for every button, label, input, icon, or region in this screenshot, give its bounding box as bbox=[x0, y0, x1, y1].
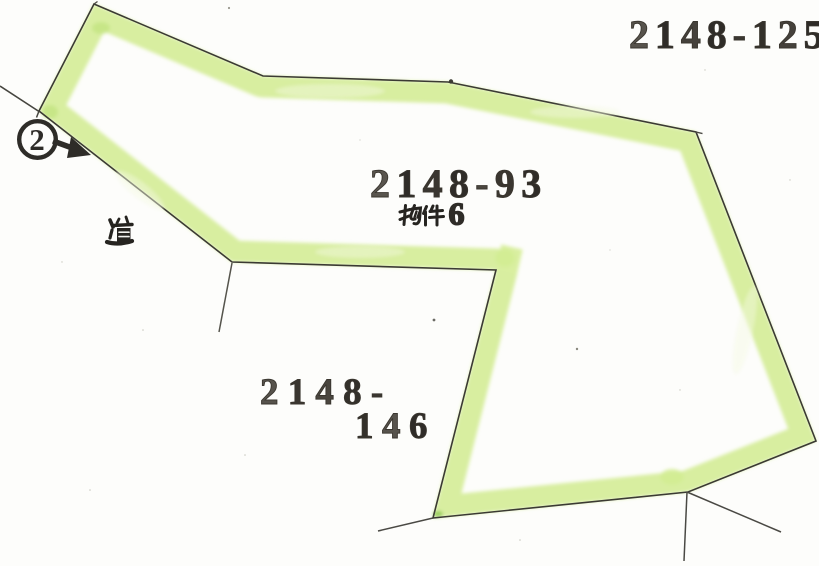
svg-text:2: 2 bbox=[29, 122, 45, 157]
svg-text:6: 6 bbox=[449, 196, 465, 232]
svg-text:2148-125: 2148-125 bbox=[629, 12, 819, 57]
svg-text:146: 146 bbox=[355, 406, 436, 447]
